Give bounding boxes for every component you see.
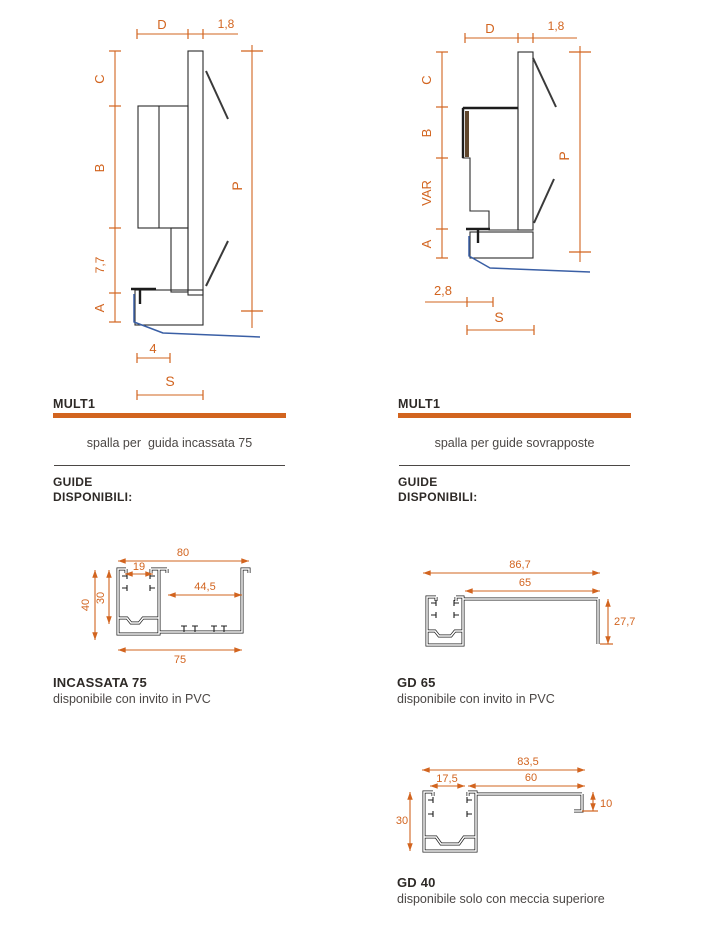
dim-label-1-8: 1,8: [218, 17, 235, 31]
dim-label-p: P: [556, 151, 572, 160]
guide-heading-right: GUIDE DISPONIBILI:: [398, 475, 478, 504]
sill-profile-line: [469, 236, 590, 272]
dim-label-b: B: [92, 164, 107, 173]
dimension-30: 30: [396, 792, 410, 851]
timber-strip: [465, 111, 469, 157]
dimension-60: 60: [468, 772, 585, 786]
dim-label-a: A: [92, 303, 107, 312]
mult1-block-right: MULT1 spalla per guide sovrapposte: [398, 397, 631, 469]
dim-label-s: S: [165, 373, 174, 389]
section-caption: spalla per guide sovrapposte: [398, 436, 631, 450]
catalog-page: D 1,8 C B 7,7 A P 4: [0, 0, 708, 926]
profile-note: disponibile con invito in PVC: [397, 692, 555, 706]
guide-heading-line1: GUIDE: [398, 475, 478, 490]
dimension-d: D 1,8: [137, 17, 238, 39]
dim-label-27-7: 27,7: [614, 616, 635, 628]
dim-label-1-8: 1,8: [548, 19, 565, 33]
dim-label-c: C: [92, 74, 107, 83]
dim-label-86-7: 86,7: [509, 559, 530, 571]
wood-jamb-panel: [188, 51, 203, 295]
dimension-vertical-stack: C B VAR A: [419, 52, 448, 258]
profile-diagram-incassata75: 80 19 44,5 40 30 75: [48, 540, 258, 670]
dim-label-4: 4: [149, 341, 156, 356]
dimension-40: 40: [80, 570, 95, 640]
divider-line: [54, 465, 285, 466]
dimension-19: 19: [125, 561, 153, 574]
wood-jamb-panel: [518, 52, 533, 230]
dim-label-60: 60: [525, 772, 537, 784]
dim-label-b: B: [419, 129, 434, 138]
dim-label-s: S: [494, 309, 503, 325]
profile-clips: [428, 797, 472, 817]
dimension-27-7: 27,7: [600, 599, 635, 644]
profile-note: disponibile solo con meccia superiore: [397, 892, 605, 906]
dimension-10: 10: [582, 792, 612, 811]
profile-title: INCASSATA 75: [53, 675, 211, 690]
dim-label-40: 40: [80, 599, 92, 611]
profile-title: GD 40: [397, 875, 605, 890]
dimension-17-5: 17,5: [430, 773, 465, 786]
section-diagram-guida-incassata: D 1,8 C B 7,7 A P 4: [40, 10, 270, 400]
dimension-44-5: 44,5: [168, 581, 242, 595]
dim-label-83-5: 83,5: [517, 756, 538, 768]
guide-heading-line1: GUIDE: [53, 475, 133, 490]
dimension-s: S: [467, 309, 534, 335]
dimension-s: S: [137, 373, 203, 400]
dim-label-a: A: [419, 239, 434, 248]
section-title: MULT1: [398, 397, 440, 411]
section-caption: spalla per guida incassata 75: [53, 436, 286, 450]
dim-label-17-5: 17,5: [436, 773, 457, 785]
dim-label-7-7: 7,7: [93, 256, 107, 273]
dimension-75: 75: [118, 650, 242, 666]
dimension-2-8: 2,8: [425, 283, 493, 307]
wall-section: [463, 108, 533, 258]
guide-heading-line2: DISPONIBILI:: [398, 490, 478, 505]
dim-label-75: 75: [174, 654, 186, 666]
dim-label-2-8: 2,8: [434, 283, 452, 298]
dim-label-19: 19: [133, 561, 145, 573]
gd65-caption: GD 65 disponibile con invito in PVC: [397, 675, 555, 706]
fixing-pins: [533, 58, 556, 223]
guide-heading-line2: DISPONIBILI:: [53, 490, 133, 505]
profile-clips: [431, 600, 459, 618]
accent-bar: [53, 413, 286, 418]
fixing-pins: [206, 71, 228, 286]
dim-label-30: 30: [95, 592, 107, 604]
dim-label-44-5: 44,5: [194, 581, 215, 593]
sill-profile-line: [134, 294, 260, 337]
dimension-p: P: [556, 46, 591, 262]
dimension-65: 65: [465, 577, 600, 591]
dim-label-c: C: [419, 75, 434, 84]
dimension-d: D 1,8: [465, 19, 577, 43]
divider-line: [399, 465, 630, 466]
profile-diagram-gd65: 86,7 65 27,7: [410, 555, 640, 665]
dim-label-80: 80: [177, 547, 189, 559]
dim-label-p: P: [229, 181, 245, 190]
dimension-vertical-stack: C B 7,7 A: [92, 51, 121, 322]
dim-label-d: D: [157, 17, 166, 32]
mult1-block-left: MULT1 spalla per guida incassata 75: [53, 397, 286, 469]
dimension-83-5: 83,5: [422, 756, 585, 770]
profile-diagram-gd40: 83,5 60 17,5 30 10: [392, 750, 630, 865]
incassata75-caption: INCASSATA 75 disponibile con invito in P…: [53, 675, 211, 706]
dim-label-65: 65: [519, 577, 531, 589]
guide-heading-left: GUIDE DISPONIBILI:: [53, 475, 133, 504]
profile-title: GD 65: [397, 675, 555, 690]
accent-bar: [398, 413, 631, 418]
dimension-p: P: [229, 45, 263, 328]
dim-label-d: D: [485, 21, 494, 36]
gd40-caption: GD 40 disponibile solo con meccia superi…: [397, 875, 605, 906]
wall-section: [135, 106, 203, 325]
dimension-80: 80: [118, 547, 249, 561]
dimension-86-7: 86,7: [423, 559, 600, 573]
section-title: MULT1: [53, 397, 95, 411]
dimension-4: 4: [137, 341, 170, 363]
section-diagram-guide-sovrapposte: D 1,8 C B VAR A P 2,8: [390, 10, 620, 340]
dim-label-10: 10: [600, 798, 612, 810]
dimension-30: 30: [95, 570, 109, 624]
profile-note: disponibile con invito in PVC: [53, 692, 211, 706]
dim-label-30: 30: [396, 815, 408, 827]
dim-label-var: VAR: [419, 180, 434, 206]
